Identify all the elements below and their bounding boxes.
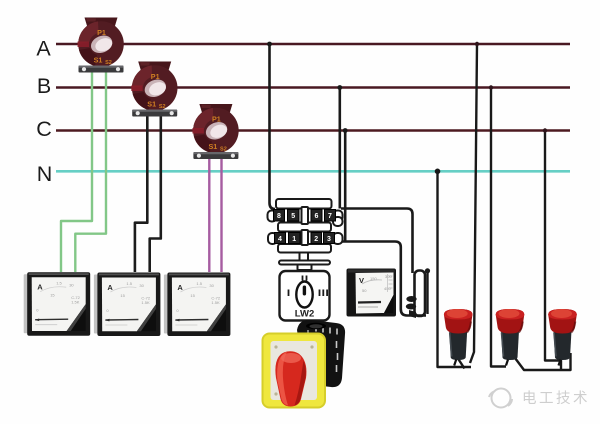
svg-text:50: 50 (362, 288, 367, 293)
svg-text:300: 300 (385, 274, 392, 279)
svg-text:B: B (37, 74, 51, 98)
svg-text:8: 8 (277, 213, 281, 220)
svg-text:1: 1 (292, 236, 296, 243)
svg-text:3: 3 (327, 236, 331, 243)
svg-text:7: 7 (328, 213, 332, 220)
svg-text:4: 4 (278, 236, 282, 243)
svg-text:2: 2 (314, 236, 318, 243)
svg-text:6: 6 (315, 213, 319, 220)
svg-text:A: A (36, 37, 51, 61)
svg-text:C: C (36, 117, 52, 141)
svg-text:N: N (37, 162, 53, 186)
svg-text:电工技术: 电工技术 (522, 390, 590, 407)
svg-text:5: 5 (291, 213, 295, 220)
svg-text:LW2: LW2 (295, 309, 315, 320)
